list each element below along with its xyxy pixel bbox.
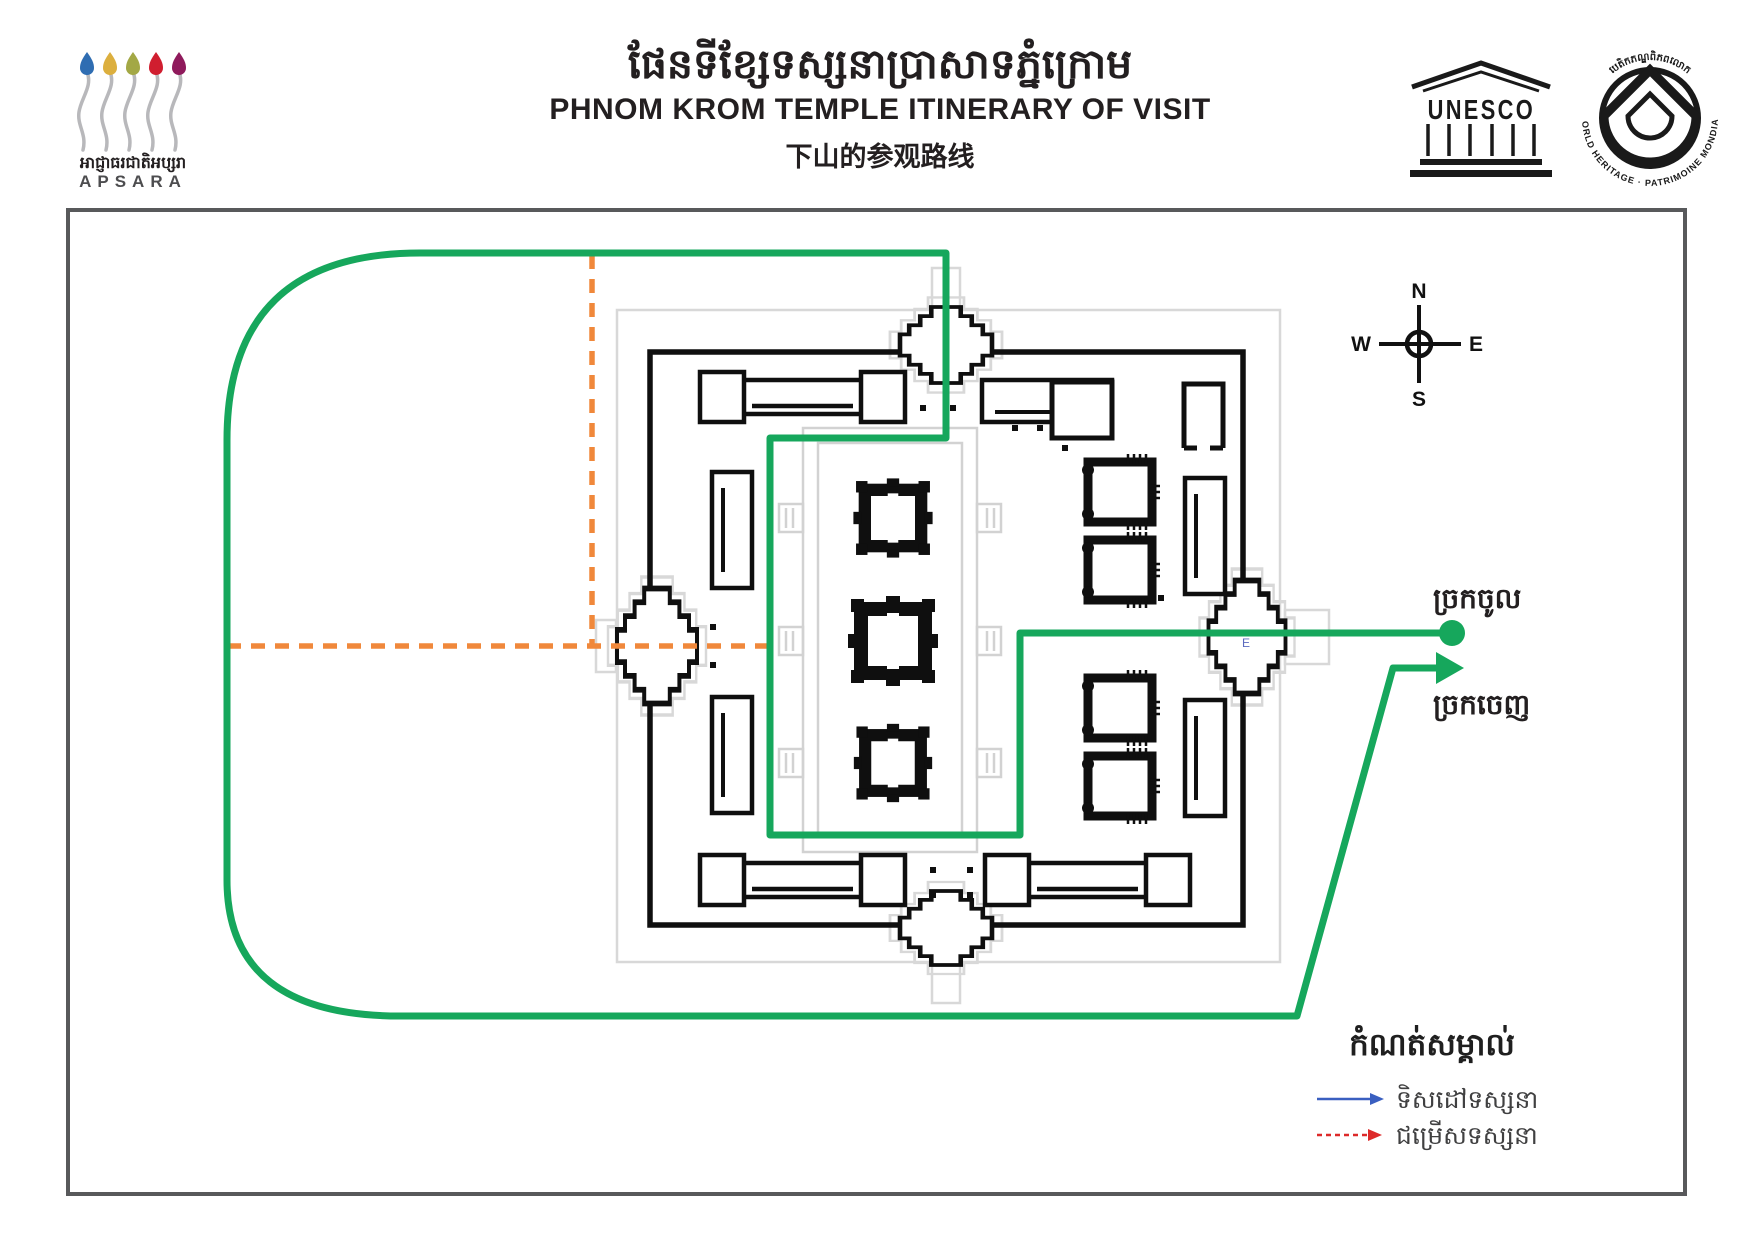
shrine-square-1 <box>1082 454 1160 530</box>
entrance-dot <box>1439 620 1465 646</box>
west-hall-north <box>712 472 752 588</box>
exit-label: ច្រកចេញ <box>1433 689 1530 722</box>
compass-north-label: N <box>1411 280 1426 303</box>
shrine-square-2 <box>1082 532 1160 608</box>
compass-west-label: W <box>1351 333 1371 356</box>
entrance-label: ច្រកចូល <box>1433 583 1521 618</box>
shrine-square-4 <box>1082 748 1160 824</box>
south-west-hall <box>700 855 905 905</box>
east-gate-letter: E <box>1242 636 1250 650</box>
south-east-hall <box>985 855 1190 905</box>
east-hall-south <box>1185 700 1225 816</box>
central-tower-north <box>853 478 932 557</box>
central-tower-middle <box>848 596 938 686</box>
north-west-hall <box>700 372 905 422</box>
ne-annex <box>1052 382 1112 438</box>
west-hall-south <box>712 697 752 813</box>
central-tower-south <box>854 724 932 802</box>
legend-item-direction-label: ទិសដៅទស្សនា <box>1396 1084 1538 1115</box>
east-hall-north <box>1185 478 1225 594</box>
page: { "header": { "apsara": { "khmer_name": … <box>0 0 1757 1247</box>
legend-title: កំណត់សម្គាល់ <box>1349 1024 1515 1064</box>
shrine-square-3 <box>1082 670 1160 746</box>
legend-item-option-label: ជម្រើសទស្សនា <box>1396 1120 1538 1151</box>
compass-east-label: E <box>1469 333 1483 356</box>
map-canvas: E N S W E ច្រកចូល ច្រកចេញ កំណត់សម្គាល់ ទ… <box>0 0 1757 1247</box>
compass-south-label: S <box>1412 388 1426 411</box>
